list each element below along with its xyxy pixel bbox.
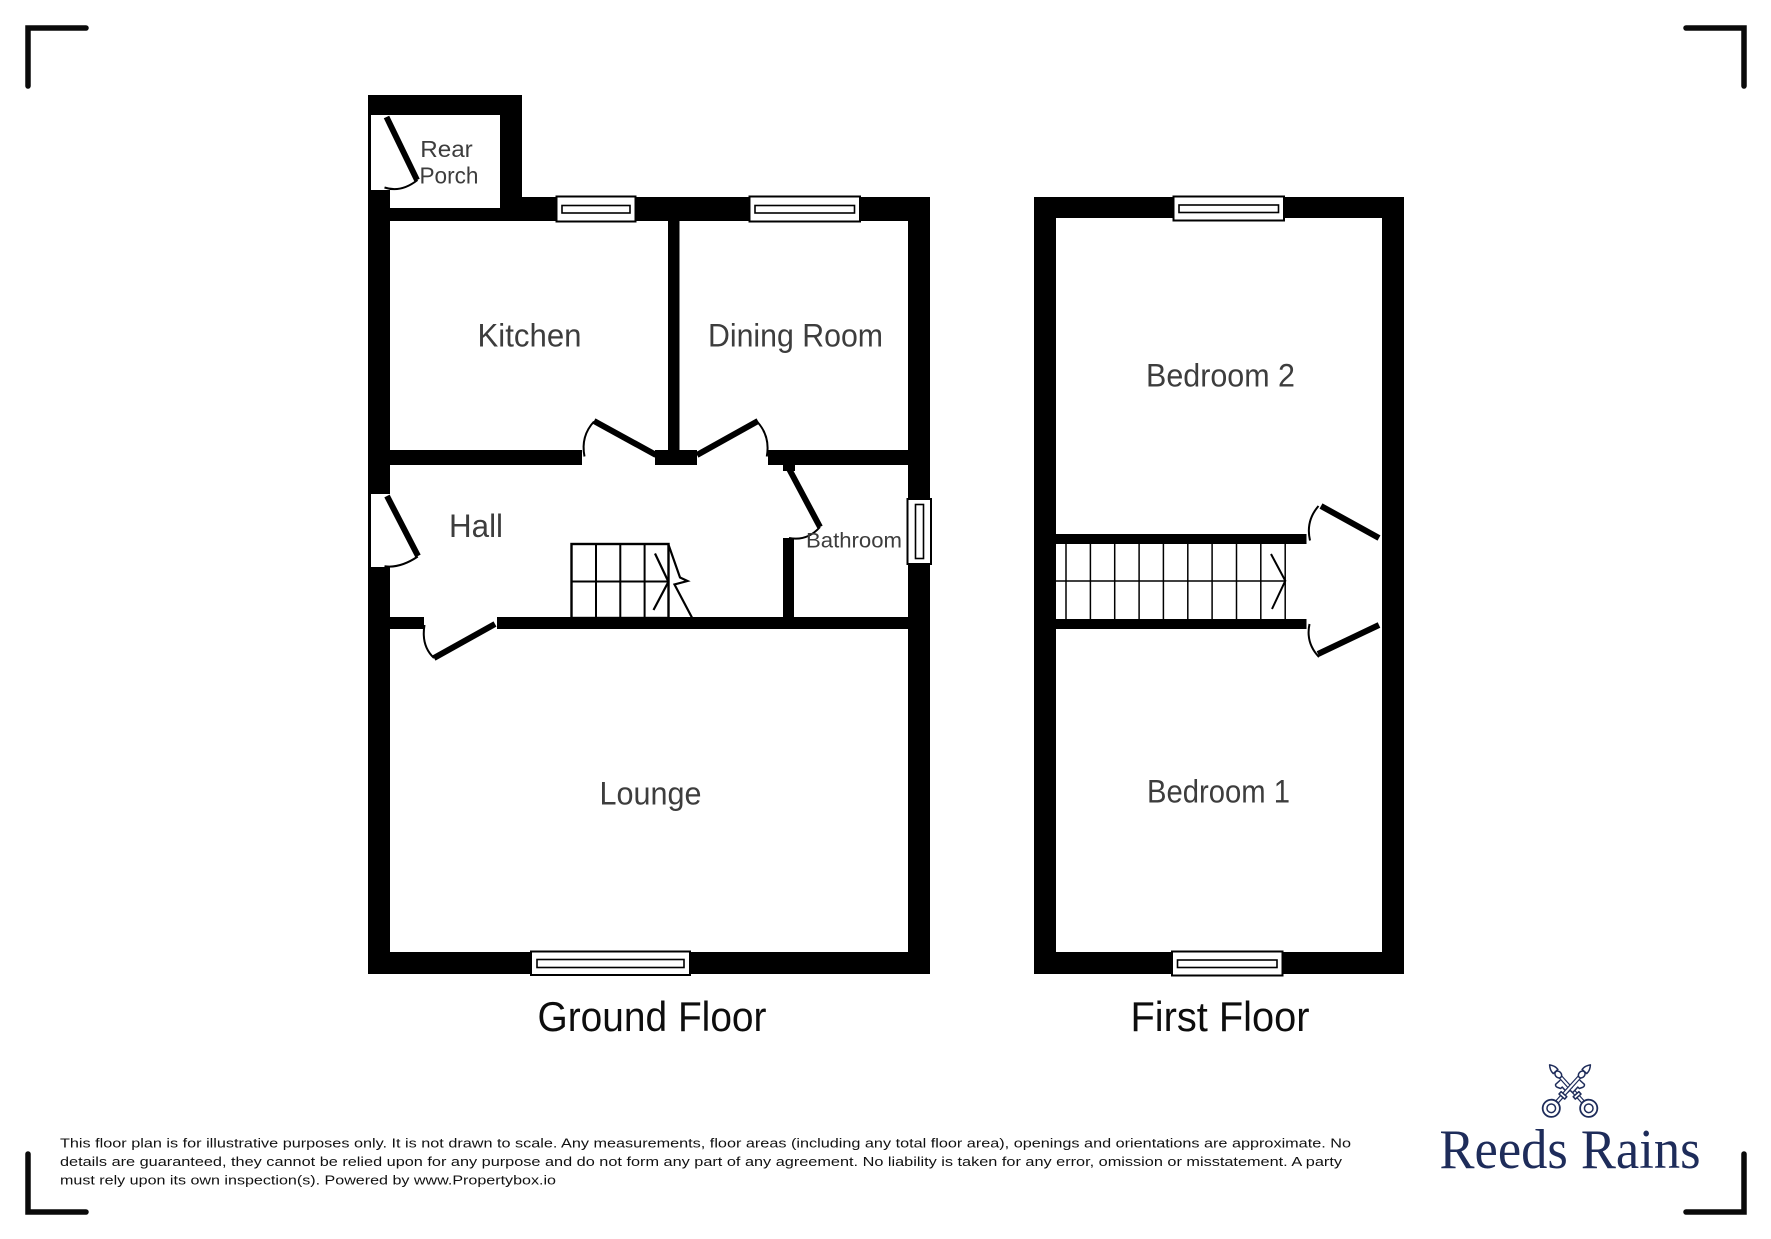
svg-text:Hall: Hall [449, 508, 503, 544]
svg-text:Reeds Rains: Reeds Rains [1440, 1119, 1701, 1181]
svg-text:Rear: Rear [420, 136, 473, 162]
svg-text:Kitchen: Kitchen [478, 318, 582, 354]
svg-text:must rely upon its own inspect: must rely upon its own inspection(s). Po… [60, 1174, 556, 1188]
svg-text:Dining Room: Dining Room [708, 318, 883, 354]
svg-text:details are guaranteed, they c: details are guaranteed, they cannot be r… [60, 1155, 1343, 1169]
svg-text:Bathroom: Bathroom [806, 530, 902, 553]
svg-text:This floor plan is for illustr: This floor plan is for illustrative purp… [60, 1137, 1351, 1151]
svg-text:Ground Floor: Ground Floor [538, 993, 767, 1040]
svg-text:First Floor: First Floor [1131, 993, 1310, 1040]
svg-text:Porch: Porch [420, 163, 479, 189]
svg-text:Bedroom 1: Bedroom 1 [1147, 774, 1290, 810]
svg-text:Bedroom 2: Bedroom 2 [1146, 358, 1295, 394]
svg-text:Lounge: Lounge [600, 776, 702, 812]
